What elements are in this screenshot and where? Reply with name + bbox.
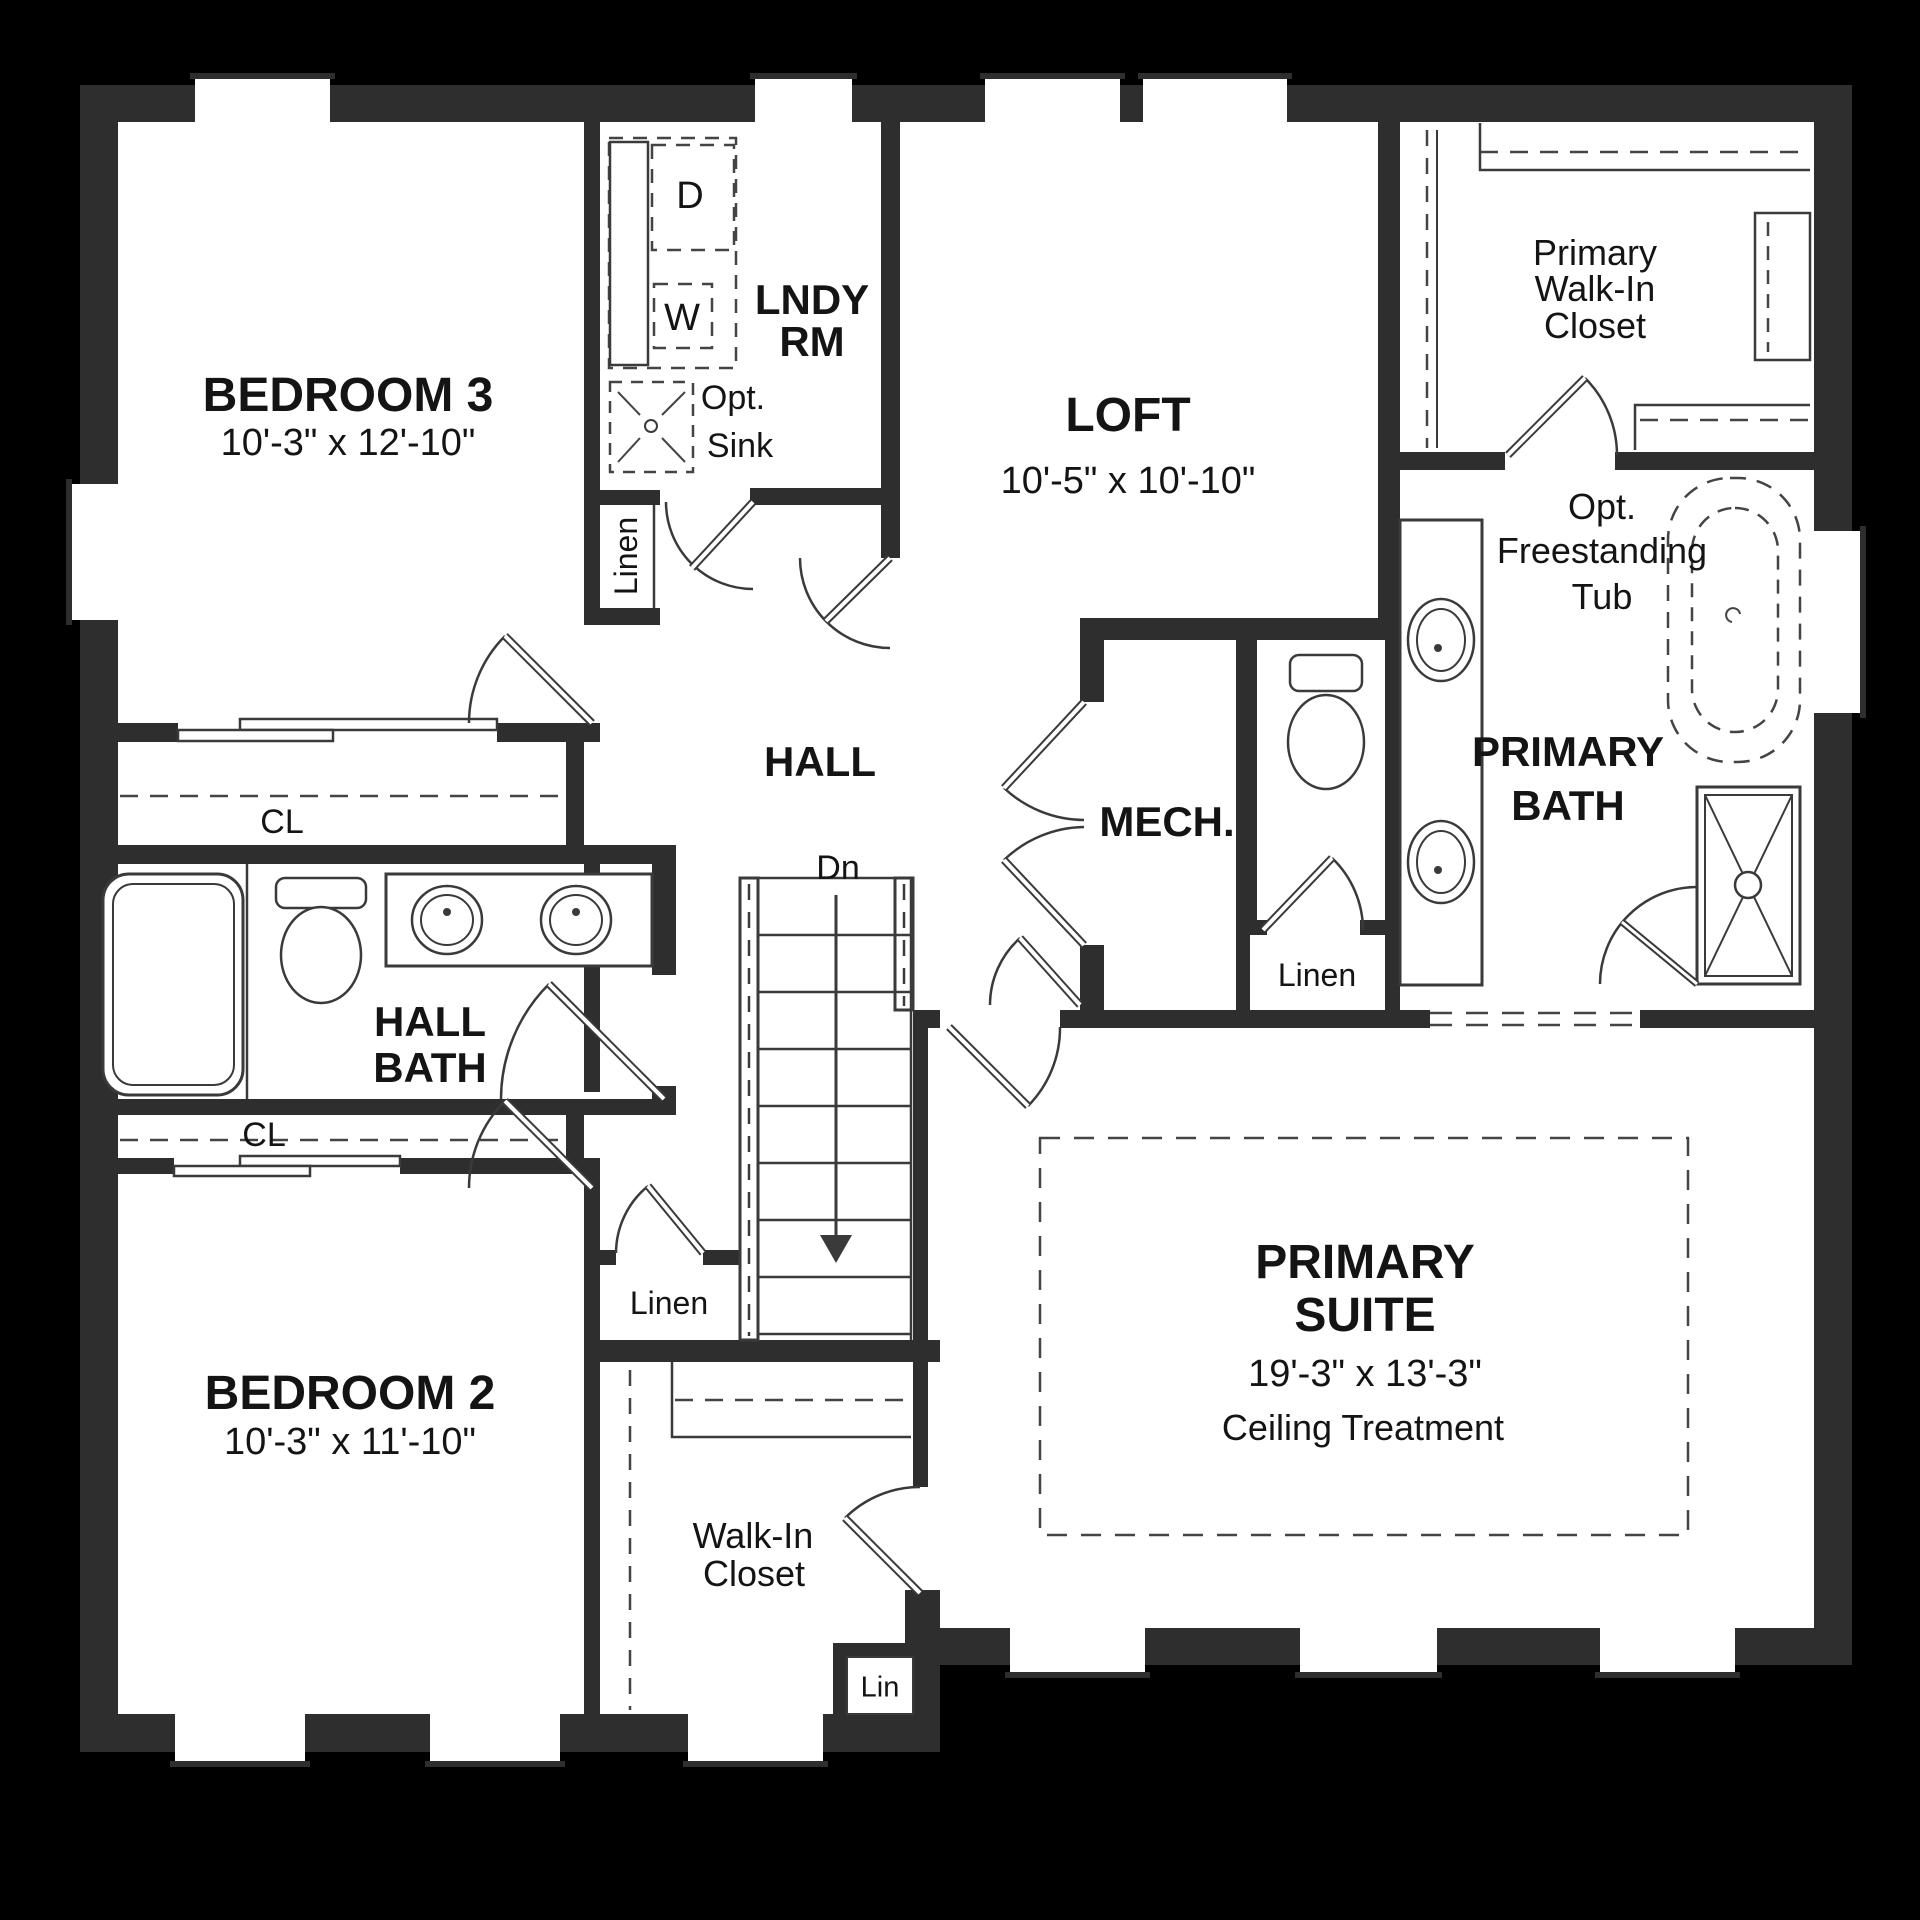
bedroom3-dims: 10'-3" x 12'-10" xyxy=(221,424,476,462)
vanity xyxy=(1400,520,1482,985)
mech-name: MECH. xyxy=(1099,801,1234,843)
closet-upper-label: CL xyxy=(260,805,303,839)
bedroom2-name: BEDROOM 2 xyxy=(205,1370,496,1418)
lin-label: Lin xyxy=(861,1674,900,1703)
laundry-name-1: LNDY xyxy=(755,279,869,321)
floor-plan: BEDROOM 3 10'-3" x 12'-10" LNDY RM D W O… xyxy=(0,0,1920,1920)
dryer-label: D xyxy=(676,177,703,215)
stairs-dn-label: Dn xyxy=(816,851,859,885)
opt-tub-3: Tub xyxy=(1572,579,1633,615)
opt-tub-2: Freestanding xyxy=(1497,533,1707,569)
hall-name: HALL xyxy=(764,741,876,783)
hall-bath-name-2: BATH xyxy=(373,1047,487,1089)
primary-suite-dims: 19'-3" x 13'-3" xyxy=(1248,1355,1482,1393)
primary-bath-name-1: PRIMARY xyxy=(1472,731,1664,773)
laundry-name-2: RM xyxy=(779,321,844,363)
primary-closet-3: Closet xyxy=(1544,308,1646,344)
primary-suite-name-2: SUITE xyxy=(1294,1292,1435,1340)
opt-sink-1: Opt. xyxy=(701,381,765,415)
bedroom2-dims: 10'-3" x 11'-10" xyxy=(224,1423,476,1461)
washer-label: W xyxy=(664,299,700,337)
primary-suite-name-1: PRIMARY xyxy=(1255,1239,1475,1287)
loft-name: LOFT xyxy=(1065,392,1190,440)
walk-in-closet-2: Closet xyxy=(703,1556,805,1592)
closet-lower-label: CL xyxy=(242,1118,285,1152)
toilet-tank xyxy=(276,878,366,908)
opt-sink-2: Sink xyxy=(707,429,773,463)
primary-suite-note: Ceiling Treatment xyxy=(1222,1410,1504,1446)
loft-dims: 10'-5" x 10'-10" xyxy=(1001,462,1256,500)
walk-in-closet-1: Walk-In xyxy=(693,1518,814,1554)
closet-dresser xyxy=(1755,213,1810,360)
hall-bath-name-1: HALL xyxy=(374,1001,486,1043)
primary-bath-name-2: BATH xyxy=(1511,785,1625,827)
bedroom3-name: BEDROOM 3 xyxy=(203,372,494,420)
primary-closet-2: Walk-In xyxy=(1535,271,1656,307)
primary-bath-linen-label: Linen xyxy=(1278,959,1356,991)
laundry-linen-label: Linen xyxy=(610,517,642,595)
toilet-bowl xyxy=(1288,695,1364,789)
toilet-bowl xyxy=(281,907,361,1003)
linen-bottom-label: Linen xyxy=(630,1287,708,1319)
opt-tub-1: Opt. xyxy=(1568,489,1636,525)
toilet-tank xyxy=(1290,655,1362,691)
primary-closet-1: Primary xyxy=(1533,235,1657,271)
